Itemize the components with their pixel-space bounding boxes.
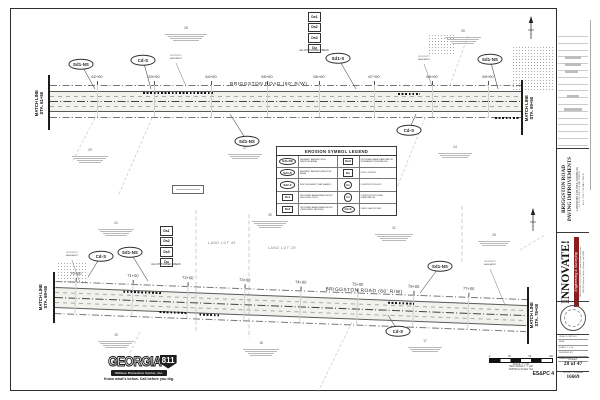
legend-desc: SEDIMENT BARRIER (SENSITIVE AREA)	[299, 168, 338, 179]
legend-symbol-cell: Co	[338, 179, 360, 191]
utility-easement-label: 20' UTILITYEASEMENT	[66, 252, 78, 257]
legend-symbol-du: Du	[343, 169, 352, 177]
title-block: BRIGGSTON ROAD PAVING IMPROVEMENTS LOWND…	[556, 8, 591, 391]
legend-symbol-sd1-s: Sd1-S	[280, 169, 295, 176]
easement-leader	[72, 260, 80, 283]
scale-tick-label: 50	[529, 355, 532, 358]
firm-address: 2804 N. Patterson Street, Valdosta, GA 3…	[583, 251, 585, 293]
legend-symbol-cell: Du	[338, 168, 360, 179]
erosion-callout: Sd1-NS	[118, 247, 143, 258]
sheet-value: 28 of 47	[557, 361, 589, 367]
scale-tick-label: 25	[508, 355, 511, 358]
erosion-callout: Sd1-NS	[235, 136, 260, 147]
legend-desc: DISTURBED AREA STABILIZATION (TEMPORARY …	[299, 204, 338, 215]
plot-stamp-line	[590, 20, 591, 190]
erosion-callout: Sd1-NS	[428, 261, 453, 272]
legend-desc: DUST CONTROL	[360, 168, 399, 179]
legend-row: Ds1DISTURBED AREA STABILIZATION (MULCHIN…	[277, 191, 396, 204]
legend-symbol-cell: Cd-S	[338, 204, 360, 215]
project-landlots-1: L.L. 20, 29, 30 & 31 OF THE 16TH L.D.	[579, 171, 582, 207]
scale-bar-graphic	[489, 358, 553, 363]
utility-easement-label: 20' UTILITYEASEMENT	[484, 261, 496, 266]
revision-entry-smudge	[564, 108, 582, 111]
disturbed-symbol-ds1: Ds1	[308, 12, 321, 22]
sheet-series-label: ES&PC 4	[506, 371, 554, 377]
legend-symbol-cell: Ds2	[277, 204, 299, 215]
erosion-callout: Sd1-NS	[478, 54, 503, 65]
legend-symbol-sd2-f: Sd2-F	[280, 181, 294, 188]
legend-desc: DISTURBED AREA STABILIZATION (PERMANENT …	[360, 156, 399, 167]
legend-symbol-cell: Sd1-NS	[277, 156, 299, 167]
legend-symbol-sd1-ns: Sd1-NS	[279, 158, 296, 165]
legend-symbol-cd-s: Cd-S	[342, 206, 355, 213]
georgia811-word: GEORGIA	[109, 354, 162, 369]
erosion-callout: Cd-S	[397, 125, 422, 136]
georgia811-wordmark: GEORGIA 811	[101, 354, 176, 369]
legend-row: Sd1-SSEDIMENT BARRIER (SENSITIVE AREA)Du…	[277, 167, 396, 179]
match-line-text: STA. 78+00	[534, 292, 539, 338]
revision-entry-smudge	[567, 95, 579, 98]
plan-sheet: 62+0063+0064+0065+0066+0067+0068+0069+00…	[0, 0, 600, 400]
georgia811-number: 811	[162, 355, 175, 366]
match-line-left-bar	[53, 272, 55, 323]
utility-easement-label: 20' UTILITYEASEMENT	[418, 56, 430, 61]
disturbed-areas-note: ALL DISTURBED AREAS	[146, 263, 186, 266]
match-line-left-label: MATCH LINESTA. 61+50	[34, 80, 44, 126]
legend-symbol-cell: Sd2-F	[277, 179, 299, 191]
legend-symbol-cell: Ds1	[277, 192, 299, 204]
match-line-text: STA. 69+50	[529, 85, 534, 131]
legend-symbol-cell: Sd1-S	[277, 168, 299, 179]
legend-title: EROSION SYMBOL LEGEND	[277, 147, 396, 156]
legend-row: Ds2DISTURBED AREA STABILIZATION (TEMPORA…	[277, 203, 396, 215]
firm-tagline: Engineering & Surveying	[574, 237, 580, 307]
match-line-left-bar	[48, 75, 50, 130]
legend-symbol-cs: Cs	[344, 193, 353, 202]
georgia811-logo: GEORGIA 811 Utilities Protection Center,…	[96, 354, 182, 390]
erosion-callout: Cd-S	[386, 326, 411, 337]
erosion-callout: Sd1-NS	[69, 59, 94, 70]
disturbed-symbol-ds3: Ds3	[160, 247, 173, 257]
match-line-text: STA. 69+50	[43, 274, 48, 320]
utility-easement-label: 20' UTILITYEASEMENT	[170, 55, 182, 60]
easement-leader	[490, 269, 505, 305]
easement-leader	[424, 64, 432, 86]
easement-text: EASEMENT	[170, 58, 182, 61]
project-county: LOWNDES COUNTY, GEORGIA	[575, 167, 579, 211]
terrain-dash-line	[450, 36, 468, 85]
legend-desc: DISTURBED AREA STABILIZATION (MULCHING O…	[299, 192, 338, 204]
legend-row: Sd2-FINLET SEDIMENT TRAP (FABRIC)CoCONST…	[277, 178, 396, 191]
legend-desc: CHECK DAM (STONE)	[360, 204, 399, 215]
firm-logo-block: INNOVATE! Engineering & Surveying TELEPH…	[558, 234, 588, 310]
pe-seal-inner	[564, 309, 582, 327]
plan-note-box	[172, 185, 204, 194]
easement-text: EASEMENT	[66, 255, 78, 258]
graphic-scale-bar: 02550100 SCALE: 1" = 50' HALF SCALE: 1" …	[488, 355, 554, 371]
legend-rows: Sd1-NSSEDIMENT BARRIER (NON-SENSITIVE AR…	[277, 156, 396, 215]
match-line-right-label: MATCH LINESTA. 78+00	[529, 292, 539, 338]
note-box-text-line	[176, 189, 200, 190]
project-title-block: BRIGGSTON ROAD PAVING IMPROVEMENTS LOWND…	[557, 149, 589, 229]
match-line-left-label: MATCH LINESTA. 69+50	[38, 274, 48, 320]
legend-desc: CONSTRUCTION EXIT	[360, 179, 399, 191]
legend-symbol-ds3: Ds3	[343, 158, 354, 166]
match-line-right-label: MATCH LINESTA. 69+50	[524, 85, 534, 131]
project-landlots-2: & L.L. 76 & 77 OF THE 11TH L.D.	[583, 173, 586, 205]
revision-entry-smudge	[565, 63, 581, 66]
georgia811-bar: Utilities Protection Center, Inc.	[111, 370, 168, 376]
easement-text: EASEMENT	[484, 264, 496, 267]
project-number-value: 16669	[557, 374, 589, 380]
disturbed-symbol-ds1: Ds1	[160, 226, 173, 236]
match-line-text: STA. 61+50	[39, 80, 44, 126]
terrain-dash-line	[118, 118, 152, 196]
revision-entry-smudge	[565, 56, 581, 59]
legend-desc: INLET SEDIMENT TRAP (FABRIC)	[299, 179, 338, 191]
north-arrow-icon	[529, 16, 533, 23]
legend-symbol-cell: Cs	[338, 192, 360, 204]
project-number-box: PROJECT NUMBER 16669	[557, 372, 589, 380]
georgia811-tagline: Know what's below. Call before you dig.	[104, 377, 174, 381]
legend-symbol-cell: Ds3	[338, 156, 360, 167]
sheet-number-box: SHEET 28 of 47	[557, 358, 589, 367]
legend-desc: SEDIMENT BARRIER (NON-SENSITIVE AREA)	[299, 156, 338, 167]
easement-text: EASEMENT	[418, 59, 430, 62]
project-title-line2: PAVING IMPROVEMENTS	[567, 157, 574, 221]
legend-row: Sd1-NSSEDIMENT BARRIER (NON-SENSITIVE AR…	[277, 156, 396, 167]
disturbed-symbol-ds2: Ds2	[308, 23, 321, 33]
terrain-dash-line	[520, 235, 545, 250]
legend-symbol-co: Co	[344, 181, 353, 190]
firm-name: INNOVATE!	[561, 240, 573, 303]
erosion-symbol-legend: EROSION SYMBOL LEGEND Sd1-NSSEDIMENT BAR…	[276, 146, 397, 216]
easement-leader	[176, 63, 186, 86]
georgia811-shield-icon: 811	[160, 355, 177, 369]
north-arrow-icon	[531, 208, 535, 215]
divider	[557, 232, 589, 233]
scale-tick-label: 100	[549, 355, 553, 358]
legend-symbol-ds2: Ds2	[282, 206, 293, 214]
revision-entry-smudge	[565, 70, 578, 73]
erosion-callout: Sd1-S	[326, 53, 351, 64]
erosion-callout: Cd-S	[89, 251, 114, 262]
disturbed-areas-note: ALL DISTURBED AREAS	[294, 49, 334, 52]
legend-desc: CONSTRUCTION ROAD STABILIZATION	[360, 192, 399, 204]
legend-symbol-ds1: Ds1	[282, 194, 293, 202]
pe-seal	[560, 305, 586, 331]
erosion-callout: Cd-S	[131, 55, 156, 66]
disturbed-area-stack: Ds1Ds2Ds3Du	[308, 12, 321, 54]
revision-table	[558, 30, 588, 148]
disturbed-symbol-ds3: Ds3	[308, 33, 321, 43]
terrain-dash-line	[318, 322, 352, 392]
firm-phone: TELEPHONE (229) 244-0594 • www.innovate-…	[580, 247, 582, 298]
divider	[557, 301, 589, 302]
terrain-dash-line	[72, 118, 95, 162]
disturbed-area-stack: Ds1Ds2Ds3Du	[160, 226, 173, 268]
scale-tick-label: 0	[489, 355, 490, 358]
disturbed-symbol-ds2: Ds2	[160, 237, 173, 247]
